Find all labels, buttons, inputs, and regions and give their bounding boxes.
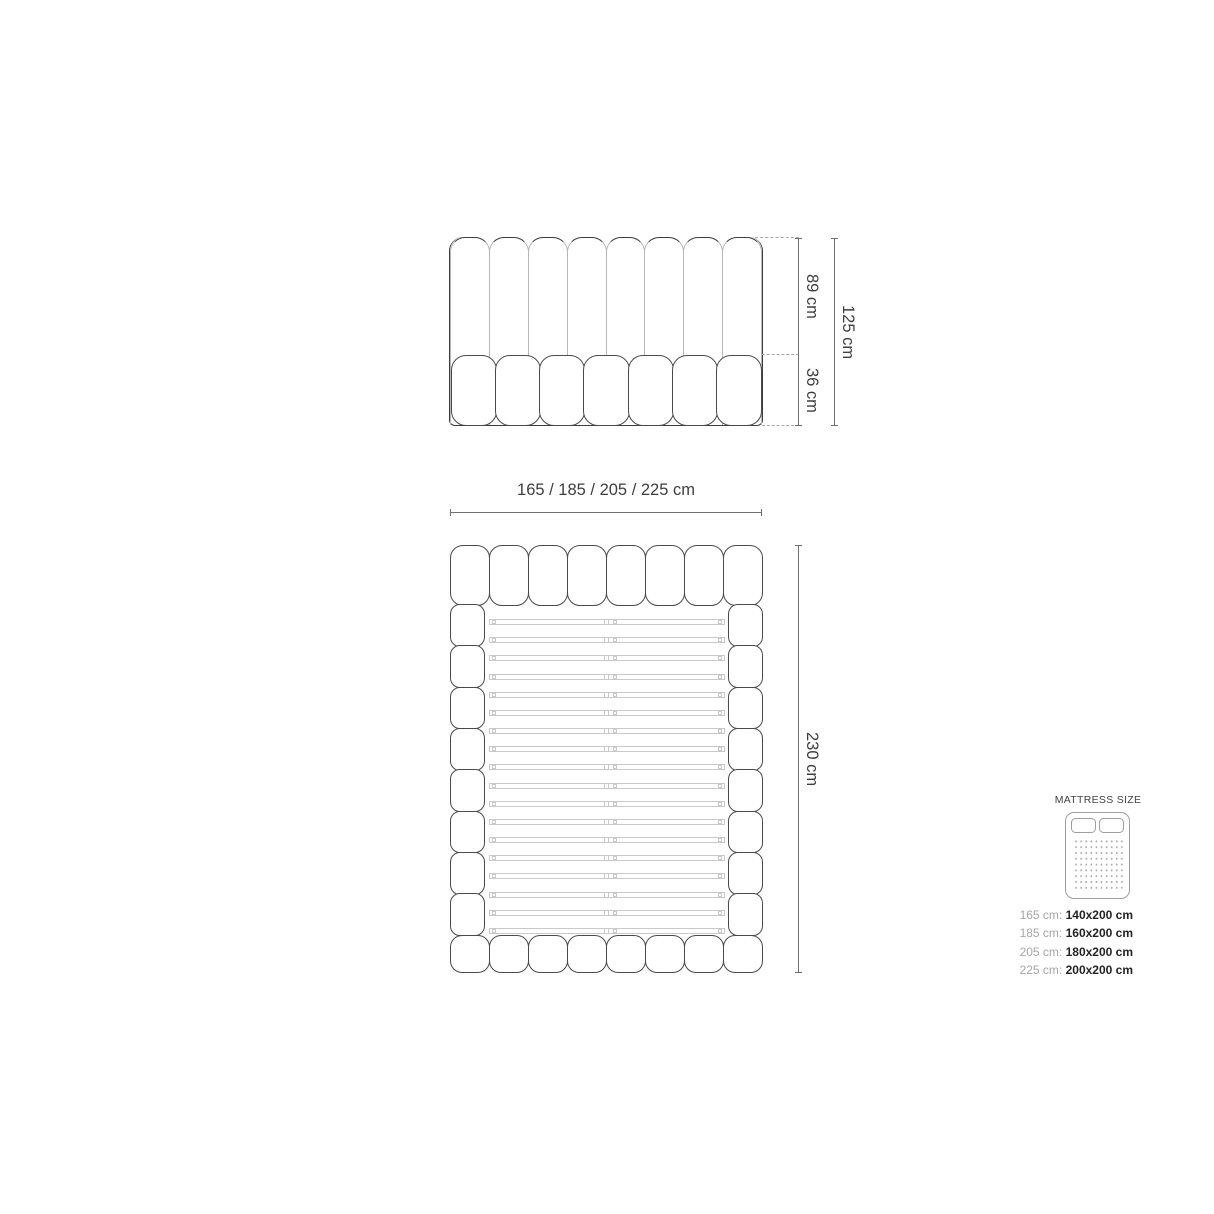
plan-footer-cushion <box>528 935 568 973</box>
bed-slat <box>489 928 725 934</box>
bed-slat <box>489 783 725 789</box>
rail-segment <box>450 645 485 688</box>
bed-slat <box>489 910 725 916</box>
extension-line-top <box>755 237 799 238</box>
mattress-size-row: 165 cm: 140x200 cm <box>990 906 1133 924</box>
bed-slat <box>489 855 725 861</box>
width-dimension-line <box>450 512 762 513</box>
plan-header-cushion <box>684 545 724 606</box>
dimension-line-total-height <box>834 238 835 426</box>
bed-slat <box>489 837 725 843</box>
width-dimension-label: 165 / 185 / 205 / 225 cm <box>449 481 763 500</box>
plan-footer-cushion <box>684 935 724 973</box>
bed-slat <box>489 619 725 625</box>
bed-slat <box>489 692 725 698</box>
extension-line-bottom <box>762 425 799 426</box>
rail-segment <box>728 852 763 895</box>
plan-footer-cushion <box>723 935 763 973</box>
rail-segment <box>450 893 485 936</box>
pillow-icon <box>1071 818 1096 833</box>
bed-slat <box>489 801 725 807</box>
plan-footer-cushion <box>567 935 607 973</box>
rail-segment <box>450 811 485 854</box>
mattress-dots-pattern <box>1072 837 1123 892</box>
rail-segment <box>450 852 485 895</box>
bed-width-label: 205 cm: <box>1020 945 1066 959</box>
mattress-icon <box>1065 812 1130 899</box>
rail-segment <box>450 769 485 812</box>
base-cushion <box>716 355 762 426</box>
bed-slat <box>489 819 725 825</box>
rail-segment <box>728 893 763 936</box>
plan-footer-cushion <box>489 935 529 973</box>
dim-label-upper-height: 89 cm <box>802 238 821 355</box>
mattress-size-value: 180x200 cm <box>1066 945 1133 959</box>
plan-header-band <box>450 545 763 606</box>
plan-footer-cushion <box>450 935 490 973</box>
mattress-size-value: 160x200 cm <box>1066 926 1133 940</box>
rail-segment <box>450 687 485 730</box>
bed-slat <box>489 873 725 879</box>
plan-footer-band <box>450 935 763 973</box>
plan-header-cushion <box>567 545 607 606</box>
rail-segment <box>728 687 763 730</box>
plan-footer-cushion <box>645 935 685 973</box>
plan-footer-cushion <box>606 935 646 973</box>
bed-slat <box>489 674 725 680</box>
dim-label-lower-height: 36 cm <box>802 355 821 426</box>
mattress-size-value: 200x200 cm <box>1066 963 1133 977</box>
extension-line-middle <box>762 354 799 355</box>
mattress-size-list: 165 cm: 140x200 cm185 cm: 160x200 cm205 … <box>990 906 1133 979</box>
plan-header-cushion <box>645 545 685 606</box>
rail-segment <box>728 769 763 812</box>
rail-segment <box>728 728 763 771</box>
bed-slat <box>489 892 725 898</box>
mattress-size-title: MATTRESS SIZE <box>1040 794 1156 806</box>
base-cushion <box>628 355 674 426</box>
rail-segment <box>450 604 485 647</box>
pillow-icon <box>1099 818 1124 833</box>
plan-header-cushion <box>450 545 490 606</box>
bed-slat <box>489 728 725 734</box>
dimension-line-length <box>798 545 799 973</box>
front-base-band <box>451 355 762 426</box>
rail-segment <box>728 604 763 647</box>
rail-segment <box>728 811 763 854</box>
dim-label-length: 230 cm <box>802 545 821 973</box>
base-cushion <box>672 355 718 426</box>
dimension-line-height-segments <box>798 238 799 426</box>
mattress-size-value: 140x200 cm <box>1066 908 1133 922</box>
bed-slat <box>489 637 725 643</box>
dim-label-total-height: 125 cm <box>838 238 857 426</box>
bed-width-label: 225 cm: <box>1020 963 1066 977</box>
rail-segment <box>450 728 485 771</box>
rail-segment <box>728 645 763 688</box>
bed-width-label: 185 cm: <box>1020 926 1066 940</box>
bed-slat <box>489 655 725 661</box>
bed-width-label: 165 cm: <box>1020 908 1066 922</box>
base-cushion <box>583 355 629 426</box>
base-cushion <box>539 355 585 426</box>
plan-header-cushion <box>723 545 763 606</box>
plan-header-cushion <box>606 545 646 606</box>
slat-area <box>489 619 725 934</box>
plan-left-rail <box>450 604 485 936</box>
bed-slat <box>489 746 725 752</box>
base-cushion <box>451 355 497 426</box>
base-cushion <box>495 355 541 426</box>
bed-slat <box>489 710 725 716</box>
plan-right-rail <box>728 604 763 936</box>
mattress-size-row: 205 cm: 180x200 cm <box>990 943 1133 961</box>
mattress-size-row: 185 cm: 160x200 cm <box>990 924 1133 942</box>
mattress-size-row: 225 cm: 200x200 cm <box>990 961 1133 979</box>
bed-dimensions-diagram: 89 cm 36 cm 125 cm 165 / 185 / 205 / 225… <box>0 0 1214 1214</box>
plan-header-cushion <box>528 545 568 606</box>
plan-header-cushion <box>489 545 529 606</box>
bed-slat <box>489 764 725 770</box>
